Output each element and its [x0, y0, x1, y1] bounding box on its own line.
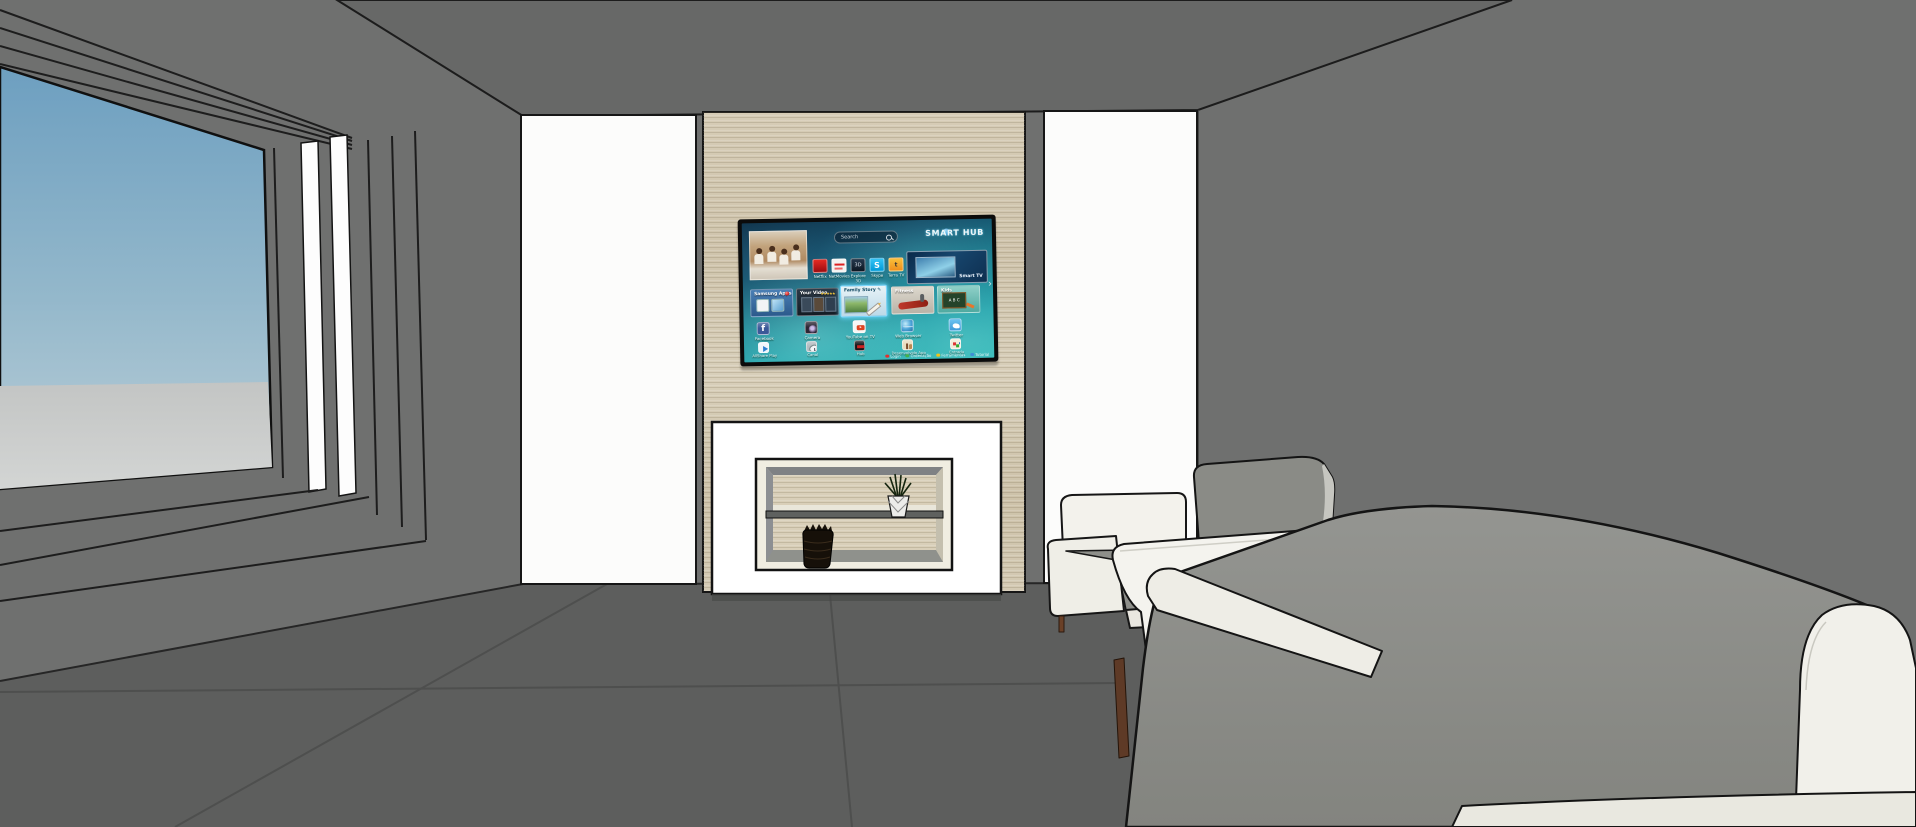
samsung-apps-badge-icon: [785, 292, 789, 296]
living-room-3d-render: Search SMART HUB Netflix NetMovies 3D Ex…: [0, 0, 1916, 827]
desenvolvido-app-icon[interactable]: [902, 339, 913, 350]
torso-4: [791, 250, 800, 260]
torso-3: [779, 255, 788, 265]
terratv-glyph: t: [895, 261, 898, 268]
legend-tools: Ferramentas: [941, 352, 965, 357]
rear-chair-arm: [1048, 536, 1124, 616]
explore3d-tile[interactable]: 3D: [850, 258, 865, 272]
family-story-tile-selected[interactable]: Family Story ✎: [840, 285, 888, 318]
skype-tile[interactable]: S: [869, 258, 884, 272]
red-key-icon: [885, 354, 889, 358]
kids-tile[interactable]: Kids A B C: [937, 285, 981, 314]
rear-chair-leg: [1059, 616, 1064, 632]
camera-label: Camera: [792, 335, 833, 341]
netmovies-label: NetMovies: [829, 273, 850, 278]
hub-icon[interactable]: [854, 340, 865, 351]
next-page-arrow[interactable]: ›: [988, 279, 992, 290]
crayon-icon: [966, 303, 975, 309]
poster-2: [813, 297, 824, 312]
legend-login: Login: [890, 353, 900, 358]
poster-3: [825, 297, 836, 312]
legend-tutorial: Tutorial: [975, 352, 989, 357]
torso-1: [754, 254, 763, 264]
basket-body: [803, 530, 833, 568]
twitter-icon[interactable]: [949, 318, 962, 331]
fitness-label: Fitness: [895, 289, 913, 294]
fitness-tile[interactable]: Fitness: [891, 286, 935, 315]
shelf-inner-top: [766, 467, 943, 475]
shelf-unit[interactable]: [756, 459, 952, 570]
search-icon: [886, 234, 892, 240]
netmovies-tile[interactable]: [831, 258, 846, 272]
facebook-icon[interactable]: f: [757, 322, 770, 335]
terratv-tile[interactable]: t: [888, 257, 903, 271]
mini-app-icon-1: [756, 299, 769, 312]
canal-icon[interactable]: [806, 341, 817, 352]
netflix-tile[interactable]: [812, 259, 827, 273]
netflix-label: Netflix: [810, 274, 831, 279]
search-bar[interactable]: Search: [834, 230, 898, 243]
family-photo: [749, 230, 808, 280]
woven-basket[interactable]: [803, 524, 833, 568]
family-story-label: Family Story: [844, 288, 876, 294]
wall-tv[interactable]: Search SMART HUB Netflix NetMovies 3D Ex…: [738, 215, 999, 367]
cabinet-shadow: [712, 594, 1001, 601]
allshare-play-icon[interactable]: [758, 342, 769, 353]
alcove-panel-left[interactable]: [521, 115, 696, 584]
scene-canvas: [0, 0, 1916, 827]
hub-label: Hub: [840, 351, 881, 357]
middle-shelf-edge: [766, 511, 943, 518]
poster-1: [801, 297, 812, 312]
skype-glyph: S: [874, 261, 880, 270]
skype-label: Skype: [867, 273, 888, 278]
allshare-play-label: AllShare Play: [744, 353, 785, 359]
canal-label: Canal: [792, 352, 833, 358]
twitter-label: Twitter: [936, 332, 977, 338]
search-placeholder: Search: [841, 234, 858, 240]
green-key-icon: [906, 354, 910, 358]
legend-sort: Ordenação: [911, 353, 932, 358]
smart-hub-logo: SMART HUB: [925, 228, 984, 238]
pencil-glyph: ✎: [877, 288, 881, 293]
mini-app-icon-2: [771, 299, 784, 312]
facebook-label: Facebook: [744, 336, 785, 342]
middle-shelf-top: [773, 505, 936, 511]
explore3d-label: Explore 3D: [848, 273, 869, 283]
torso-2: [767, 252, 776, 262]
terratv-label: Terra TV: [886, 272, 907, 277]
treadmill-icon: [898, 299, 929, 310]
runner-icon: [920, 294, 924, 302]
your-video-tile[interactable]: Your Video ★★★★★: [796, 288, 840, 317]
promo-caption: Smart TV: [959, 274, 983, 279]
web-browser-icon[interactable]: [901, 319, 914, 332]
smart-hub-screen[interactable]: Search SMART HUB Netflix NetMovies 3D Ex…: [742, 219, 995, 363]
youtube-label: YouTube on TV: [840, 334, 881, 340]
camera-icon[interactable]: [805, 321, 818, 334]
samsung-apps-tile[interactable]: Samsung Apps: [750, 288, 794, 317]
web-browser-label: Web Browser: [888, 333, 929, 339]
chalkboard-icon: A B C: [942, 292, 966, 308]
planter-pot: [888, 496, 909, 517]
family-story-photo: [844, 296, 868, 313]
yellow-key-icon: [936, 353, 940, 357]
shelf-inner-bottom: [766, 550, 943, 562]
promo-tv-image: [915, 256, 955, 278]
smart-tv-promo-tile[interactable]: Smart TV: [906, 250, 988, 285]
rating-stars: ★★★★★: [820, 291, 835, 296]
explore3d-glyph: 3D: [854, 262, 861, 268]
youtube-icon[interactable]: [853, 320, 866, 333]
blue-key-icon: [970, 353, 974, 357]
entrada-icon[interactable]: [950, 338, 961, 349]
